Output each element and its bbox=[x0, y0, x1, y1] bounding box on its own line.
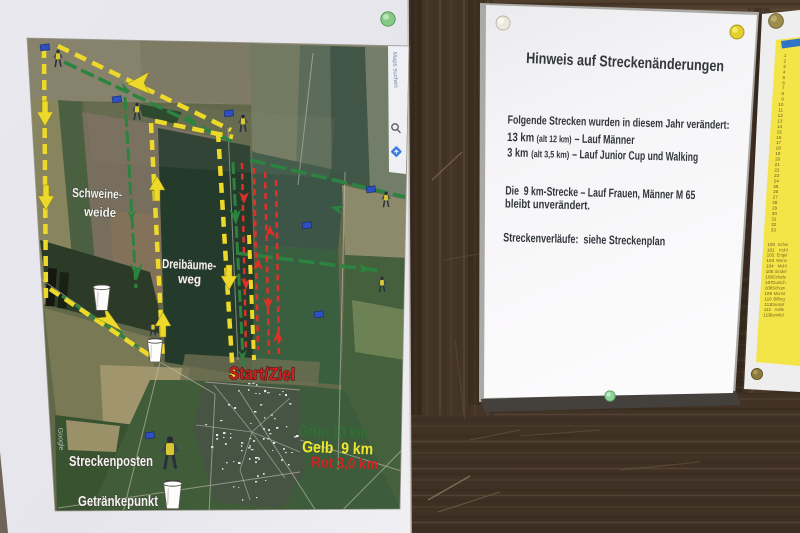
svg-text:102: 102 bbox=[767, 253, 775, 258]
svg-text:23: 23 bbox=[774, 173, 780, 178]
svg-text:weg: weg bbox=[177, 271, 201, 287]
svg-text:32: 32 bbox=[771, 222, 777, 227]
svg-text:19: 19 bbox=[775, 151, 781, 156]
svg-text:2: 2 bbox=[784, 59, 787, 64]
svg-text:3 km: 3 km bbox=[507, 145, 528, 160]
svg-text:Holle: Holle bbox=[775, 307, 785, 312]
svg-text:24: 24 bbox=[774, 178, 780, 183]
svg-text:3: 3 bbox=[783, 64, 786, 69]
svg-text:Gursch: Gursch bbox=[772, 280, 786, 285]
svg-text:– Lauf Männer: – Lauf Männer bbox=[574, 132, 635, 147]
svg-text:Dannst: Dannst bbox=[771, 302, 785, 307]
svg-text:5: 5 bbox=[783, 75, 786, 80]
svg-text:22: 22 bbox=[774, 167, 780, 172]
svg-text:13: 13 bbox=[777, 118, 783, 123]
svg-text:112: 112 bbox=[764, 307, 772, 312]
svg-text:25: 25 bbox=[773, 184, 779, 189]
svg-text:Dreibäume-: Dreibäume- bbox=[162, 256, 216, 273]
svg-text:1: 1 bbox=[784, 53, 787, 58]
svg-text:18: 18 bbox=[776, 146, 782, 151]
svg-text:26: 26 bbox=[773, 189, 779, 194]
svg-text:33: 33 bbox=[771, 227, 777, 232]
svg-text:Getränkepunkt: Getränkepunkt bbox=[78, 494, 158, 510]
svg-text:Schum: Schum bbox=[772, 285, 786, 290]
svg-text:109: 109 bbox=[764, 291, 772, 296]
svg-text:Wenn: Wenn bbox=[776, 258, 788, 263]
svg-text:Schafe: Schafe bbox=[773, 275, 787, 280]
svg-text:6: 6 bbox=[782, 80, 785, 85]
svg-text:14: 14 bbox=[777, 124, 783, 129]
svg-text:104: 104 bbox=[766, 264, 774, 269]
svg-text:Start/Ziel: Start/Ziel bbox=[229, 363, 295, 384]
svg-text:Schw: Schw bbox=[778, 242, 789, 247]
svg-text:Billing: Billing bbox=[774, 296, 786, 301]
svg-text:(alt 12 km): (alt 12 km) bbox=[536, 134, 571, 146]
svg-text:29: 29 bbox=[772, 206, 778, 211]
svg-text:9: 9 bbox=[781, 97, 784, 102]
svg-text:Muhl: Muhl bbox=[778, 264, 787, 269]
svg-text:105: 105 bbox=[766, 269, 774, 274]
svg-text:20: 20 bbox=[775, 157, 781, 162]
svg-text:Kuhl: Kuhl bbox=[779, 247, 787, 252]
svg-text:(alt 3,5 km): (alt 3,5 km) bbox=[531, 149, 569, 161]
svg-text:Schweine-: Schweine- bbox=[72, 185, 122, 202]
svg-text:weide: weide bbox=[83, 204, 116, 220]
svg-text:Sindel: Sindel bbox=[775, 269, 787, 274]
svg-text:31: 31 bbox=[771, 217, 777, 222]
svg-text:110: 110 bbox=[764, 296, 772, 301]
svg-text:13 km: 13 km bbox=[507, 130, 534, 145]
svg-text:11: 11 bbox=[778, 108, 783, 113]
svg-text:10: 10 bbox=[778, 102, 784, 107]
svg-text:101: 101 bbox=[767, 247, 775, 252]
svg-text:28: 28 bbox=[772, 200, 778, 205]
svg-text:Maps suchen: Maps suchen bbox=[391, 52, 398, 88]
svg-text:7: 7 bbox=[782, 86, 785, 91]
svg-text:103: 103 bbox=[766, 258, 774, 263]
svg-text:21: 21 bbox=[775, 162, 781, 167]
svg-text:Engel: Engel bbox=[777, 253, 788, 258]
svg-text:16: 16 bbox=[776, 135, 782, 140]
svg-text:30: 30 bbox=[772, 211, 778, 216]
svg-text:8: 8 bbox=[782, 91, 785, 96]
svg-text:Dannfel: Dannfel bbox=[769, 313, 784, 318]
svg-text:Munst: Munst bbox=[774, 291, 786, 296]
svg-text:Streckenposten: Streckenposten bbox=[69, 454, 153, 470]
svg-text:4: 4 bbox=[783, 69, 786, 74]
svg-text:12: 12 bbox=[778, 113, 784, 118]
svg-text:Rot 3,0 km: Rot 3,0 km bbox=[311, 454, 379, 473]
svg-text:17: 17 bbox=[776, 140, 782, 145]
svg-text:bleibt unverändert.: bleibt unverändert. bbox=[505, 196, 590, 212]
svg-text:27: 27 bbox=[773, 195, 779, 200]
svg-text:100: 100 bbox=[767, 242, 775, 247]
svg-text:15: 15 bbox=[777, 129, 783, 134]
